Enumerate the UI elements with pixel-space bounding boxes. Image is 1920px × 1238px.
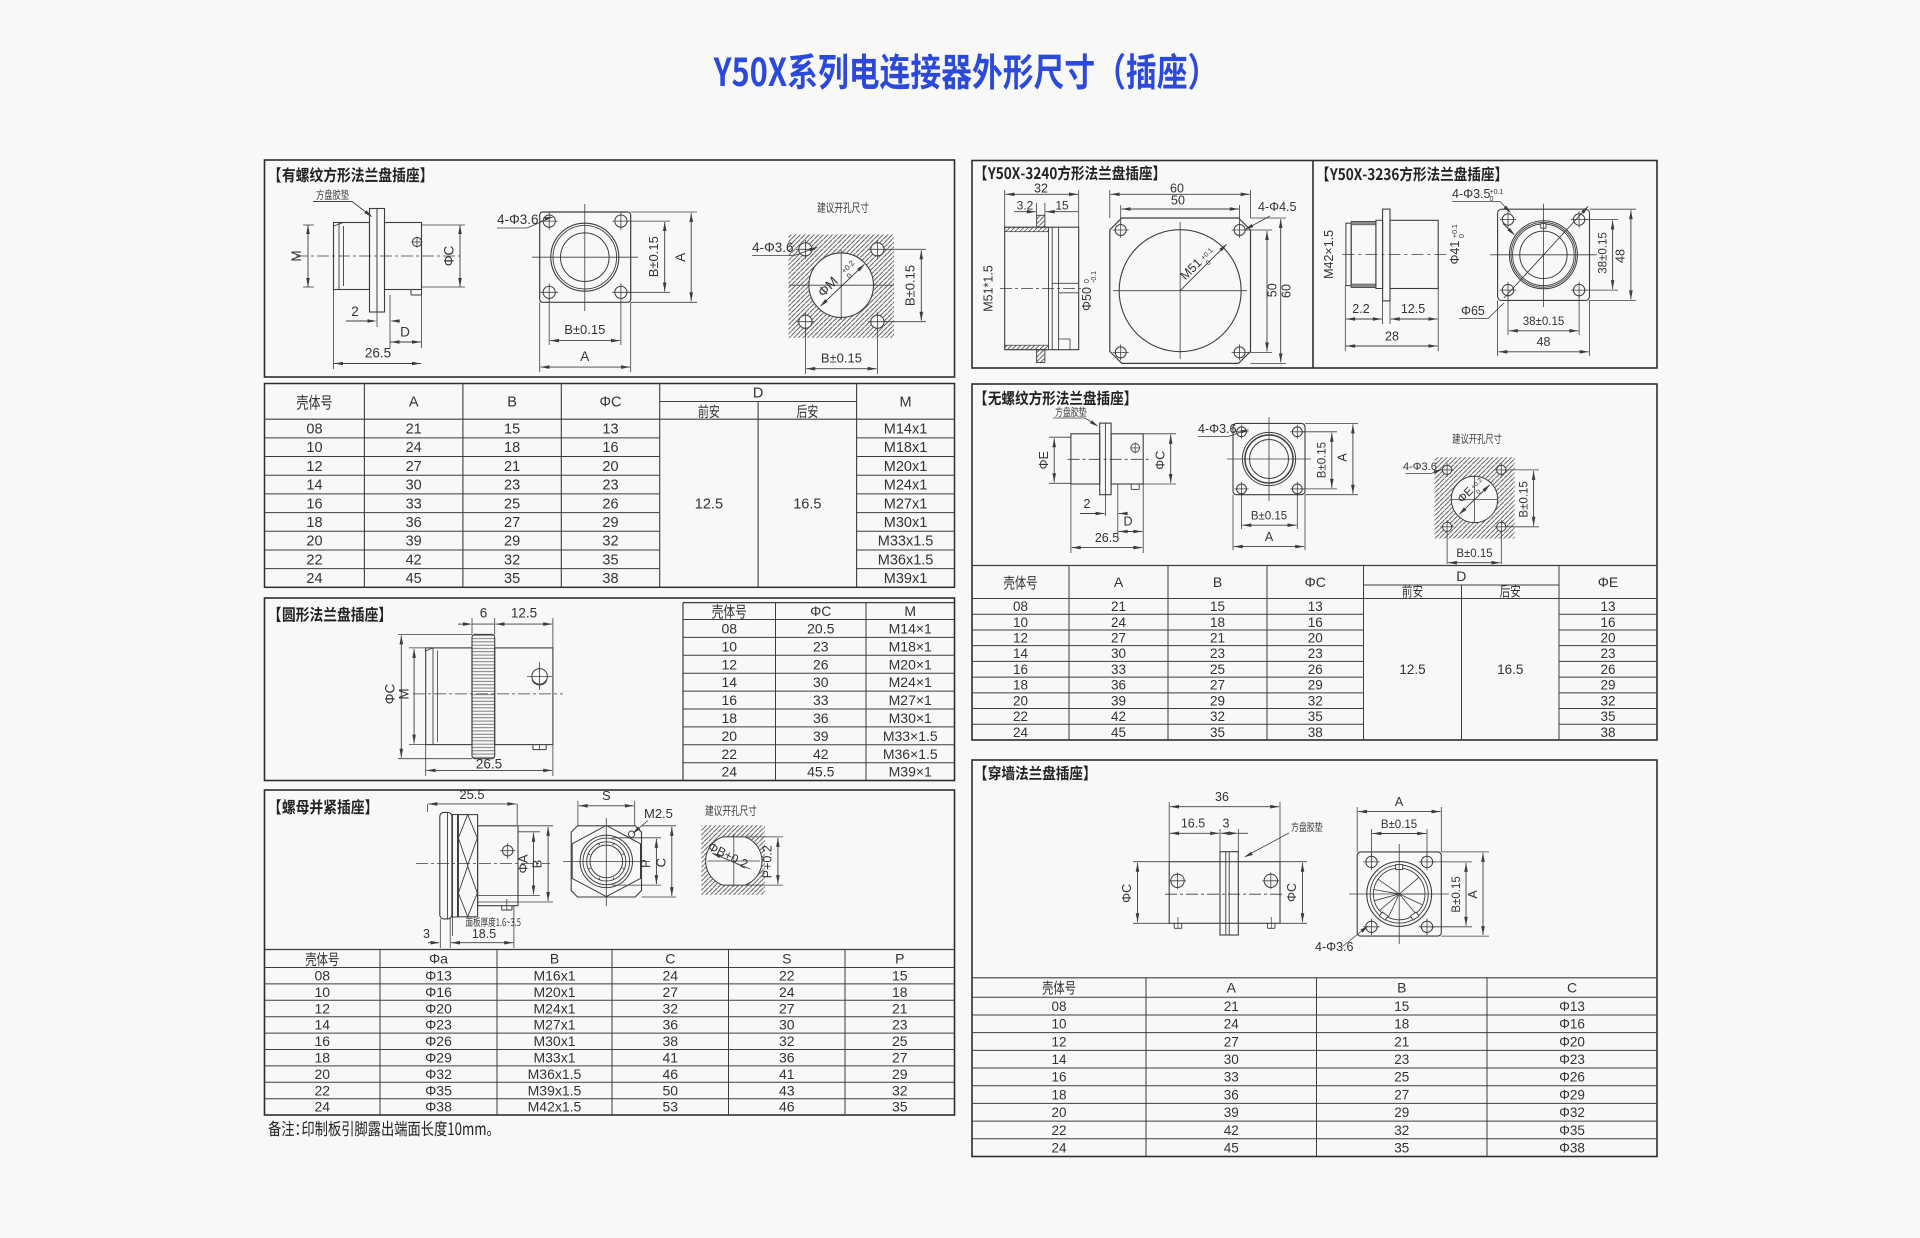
- svg-text:ΦC: ΦC: [442, 245, 457, 266]
- svg-text:27: 27: [406, 459, 422, 475]
- svg-text:10: 10: [721, 638, 737, 654]
- svg-text:20: 20: [306, 534, 322, 550]
- svg-text:18: 18: [892, 984, 908, 1000]
- svg-text:21: 21: [504, 459, 520, 475]
- svg-text:A: A: [1265, 530, 1274, 544]
- svg-text:B: B: [507, 395, 517, 411]
- svg-text:30: 30: [779, 1017, 795, 1033]
- svg-text:29: 29: [892, 1066, 908, 1082]
- svg-text:16.5: 16.5: [793, 496, 821, 512]
- svg-text:12: 12: [306, 459, 322, 475]
- svg-text:14: 14: [306, 478, 322, 494]
- svg-text:16.5: 16.5: [1181, 817, 1205, 831]
- svg-text:23: 23: [504, 478, 520, 494]
- svg-text:20: 20: [721, 728, 737, 744]
- svg-text:2: 2: [351, 304, 359, 319]
- svg-text:53: 53: [662, 1099, 678, 1115]
- svg-text:23: 23: [1600, 646, 1615, 661]
- svg-text:25: 25: [1210, 662, 1225, 677]
- svg-text:42: 42: [406, 552, 422, 568]
- svg-text:26: 26: [1600, 662, 1615, 677]
- svg-text:27: 27: [779, 1000, 795, 1016]
- svg-text:Φa: Φa: [429, 951, 448, 967]
- svg-text:38: 38: [662, 1033, 678, 1049]
- svg-text:23: 23: [1308, 646, 1323, 661]
- svg-text:P: P: [638, 859, 653, 868]
- svg-text:Φ38: Φ38: [425, 1099, 452, 1115]
- svg-text:ΦC: ΦC: [1120, 884, 1134, 903]
- svg-text:M27×1: M27×1: [889, 692, 932, 708]
- svg-text:M33x1.5: M33x1.5: [878, 534, 934, 550]
- svg-text:18: 18: [504, 440, 520, 456]
- svg-text:21: 21: [892, 1000, 908, 1016]
- svg-text:ΦC: ΦC: [599, 395, 621, 411]
- svg-text:+0.1: +0.1: [1452, 224, 1459, 238]
- svg-text:08: 08: [306, 422, 322, 438]
- svg-text:39: 39: [813, 728, 829, 744]
- svg-text:20: 20: [314, 1066, 330, 1082]
- svg-text:32: 32: [602, 534, 618, 550]
- svg-text:15: 15: [1055, 199, 1069, 213]
- svg-text:3: 3: [423, 927, 430, 941]
- svg-text:48: 48: [1614, 249, 1628, 263]
- svg-text:M36x1.5: M36x1.5: [878, 552, 934, 568]
- svg-text:20.5: 20.5: [807, 620, 834, 636]
- svg-text:35: 35: [892, 1099, 908, 1115]
- svg-text:M: M: [900, 395, 912, 411]
- svg-text:24: 24: [1013, 725, 1029, 740]
- svg-text:38: 38: [1308, 725, 1323, 740]
- svg-text:C: C: [665, 951, 675, 967]
- svg-text:30: 30: [1224, 1052, 1239, 1067]
- svg-text:50: 50: [662, 1082, 678, 1098]
- svg-text:12: 12: [1013, 631, 1028, 646]
- svg-text:23: 23: [1210, 646, 1225, 661]
- svg-text:A: A: [1395, 795, 1404, 809]
- svg-text:M24x1: M24x1: [884, 478, 928, 494]
- svg-text:M39×1: M39×1: [889, 764, 932, 780]
- svg-text:21: 21: [1111, 599, 1126, 614]
- svg-text:24: 24: [314, 1099, 330, 1115]
- svg-text:22: 22: [721, 746, 737, 762]
- svg-text:4-Φ3.6: 4-Φ3.6: [497, 212, 539, 227]
- svg-text:38±0.15: 38±0.15: [1598, 232, 1610, 274]
- svg-text:A: A: [409, 395, 419, 411]
- svg-text:4-Φ3.6: 4-Φ3.6: [1403, 461, 1437, 473]
- svg-text:16: 16: [602, 440, 618, 456]
- svg-text:B±0.15: B±0.15: [1451, 876, 1463, 912]
- svg-text:M42x1.5: M42x1.5: [528, 1099, 582, 1115]
- svg-text:Φ23: Φ23: [1559, 1052, 1585, 1067]
- svg-text:24: 24: [306, 571, 322, 587]
- svg-text:Φ13: Φ13: [425, 968, 452, 984]
- svg-text:Φ26: Φ26: [1559, 1070, 1585, 1085]
- svg-text:Φ16: Φ16: [425, 984, 452, 1000]
- svg-text:4-Φ3.6: 4-Φ3.6: [752, 240, 794, 255]
- svg-text:D: D: [400, 325, 410, 340]
- svg-text:08: 08: [1051, 999, 1066, 1014]
- svg-text:33: 33: [406, 496, 422, 512]
- svg-text:3: 3: [1223, 817, 1230, 831]
- svg-text:36: 36: [1215, 790, 1229, 804]
- svg-text:30: 30: [813, 674, 829, 690]
- svg-text:20: 20: [1308, 631, 1323, 646]
- svg-text:27: 27: [892, 1050, 908, 1066]
- svg-text:+0.1: +0.1: [1490, 189, 1504, 196]
- svg-text:-0.1: -0.1: [1091, 271, 1098, 283]
- svg-text:M39x1.5: M39x1.5: [528, 1082, 582, 1098]
- svg-text:18: 18: [1394, 1017, 1409, 1032]
- svg-text:14: 14: [721, 674, 737, 690]
- svg-text:0: 0: [1084, 279, 1091, 283]
- svg-text:39: 39: [1111, 693, 1126, 708]
- svg-text:D: D: [1456, 568, 1466, 584]
- svg-text:18: 18: [1051, 1087, 1066, 1102]
- svg-text:12.5: 12.5: [695, 496, 723, 512]
- svg-text:M42×1.5: M42×1.5: [1322, 230, 1336, 279]
- svg-text:M24x1: M24x1: [533, 1000, 575, 1016]
- svg-text:B±0.15: B±0.15: [1519, 481, 1531, 517]
- svg-text:B: B: [550, 951, 559, 967]
- svg-text:38±0.15: 38±0.15: [1523, 316, 1565, 328]
- svg-text:Φ65: Φ65: [1461, 304, 1485, 318]
- svg-text:18: 18: [314, 1050, 330, 1066]
- svg-text:12: 12: [721, 656, 737, 672]
- svg-text:ΦA: ΦA: [516, 854, 531, 873]
- svg-text:24: 24: [779, 984, 795, 1000]
- svg-text:M16x1: M16x1: [533, 968, 575, 984]
- svg-text:35: 35: [1600, 709, 1615, 724]
- svg-text:45: 45: [406, 571, 422, 587]
- svg-text:35: 35: [1210, 725, 1225, 740]
- svg-text:0: 0: [1459, 234, 1466, 238]
- svg-text:3.2: 3.2: [1017, 199, 1034, 213]
- svg-text:M30x1: M30x1: [884, 515, 928, 531]
- svg-text:24: 24: [406, 440, 422, 456]
- svg-text:16.5: 16.5: [1497, 662, 1523, 677]
- svg-text:50: 50: [1171, 194, 1185, 208]
- svg-text:27: 27: [1394, 1087, 1409, 1102]
- svg-text:32: 32: [504, 552, 520, 568]
- svg-text:M: M: [904, 603, 916, 619]
- svg-text:16: 16: [1013, 662, 1028, 677]
- svg-text:26: 26: [813, 656, 829, 672]
- svg-text:23: 23: [813, 638, 829, 654]
- svg-text:Φ41: Φ41: [1448, 241, 1462, 265]
- svg-text:32: 32: [662, 1000, 678, 1016]
- svg-text:12: 12: [314, 1000, 330, 1016]
- svg-text:P+0.2: P+0.2: [761, 845, 775, 878]
- svg-text:18: 18: [1210, 615, 1225, 630]
- svg-text:22: 22: [314, 1082, 330, 1098]
- svg-text:14: 14: [1051, 1052, 1067, 1067]
- svg-text:B: B: [530, 860, 545, 869]
- svg-text:26: 26: [602, 496, 618, 512]
- svg-text:ΦC: ΦC: [810, 603, 831, 619]
- svg-text:16: 16: [1600, 615, 1615, 630]
- svg-text:12.5: 12.5: [511, 606, 537, 621]
- svg-text:Φ26: Φ26: [425, 1033, 452, 1049]
- svg-text:M39x1: M39x1: [884, 571, 928, 587]
- svg-text:ΦC: ΦC: [383, 683, 398, 704]
- svg-text:S: S: [782, 951, 791, 967]
- svg-text:ΦE: ΦE: [1598, 574, 1619, 590]
- svg-text:M51*1.5: M51*1.5: [982, 265, 996, 312]
- svg-text:32: 32: [1308, 693, 1323, 708]
- svg-text:M36x1.5: M36x1.5: [528, 1066, 582, 1082]
- svg-text:10: 10: [1051, 1017, 1066, 1032]
- svg-text:C: C: [1567, 979, 1577, 995]
- svg-text:25: 25: [1394, 1070, 1409, 1085]
- svg-text:35: 35: [1308, 709, 1323, 724]
- svg-text:M24×1: M24×1: [889, 674, 932, 690]
- svg-text:B±0.15: B±0.15: [1317, 442, 1329, 478]
- svg-text:21: 21: [1224, 999, 1239, 1014]
- svg-text:B±0.15: B±0.15: [903, 265, 918, 306]
- svg-text:M33×1.5: M33×1.5: [883, 728, 938, 744]
- svg-text:29: 29: [1210, 693, 1225, 708]
- svg-text:33: 33: [813, 692, 829, 708]
- svg-text:M27x1: M27x1: [884, 496, 928, 512]
- svg-text:23: 23: [602, 478, 618, 494]
- svg-text:M18×1: M18×1: [889, 638, 932, 654]
- svg-text:36: 36: [779, 1050, 795, 1066]
- svg-text:46: 46: [779, 1099, 795, 1115]
- svg-text:M36×1.5: M36×1.5: [883, 746, 938, 762]
- svg-text:M: M: [289, 250, 304, 261]
- svg-text:08: 08: [721, 620, 737, 636]
- svg-text:Φ38: Φ38: [1559, 1140, 1585, 1155]
- svg-text:Φ35: Φ35: [425, 1082, 452, 1098]
- svg-text:M33x1: M33x1: [533, 1050, 575, 1066]
- svg-text:A: A: [1466, 890, 1480, 899]
- svg-text:18.5: 18.5: [472, 927, 496, 941]
- svg-text:ΦC: ΦC: [1154, 451, 1168, 470]
- svg-text:13: 13: [1600, 599, 1615, 614]
- svg-text:M30x1: M30x1: [533, 1033, 575, 1049]
- svg-text:32: 32: [779, 1033, 795, 1049]
- svg-text:B±0.15: B±0.15: [646, 236, 661, 277]
- svg-text:26: 26: [1308, 662, 1323, 677]
- svg-text:ΦE: ΦE: [1037, 451, 1051, 469]
- svg-text:16: 16: [721, 692, 737, 708]
- svg-text:14: 14: [314, 1017, 330, 1033]
- svg-text:Φ32: Φ32: [425, 1066, 452, 1082]
- svg-text:M: M: [397, 688, 412, 699]
- svg-text:ΦC: ΦC: [1305, 574, 1326, 590]
- svg-text:16: 16: [314, 1033, 330, 1049]
- svg-text:21: 21: [406, 422, 422, 438]
- svg-text:A: A: [1336, 453, 1350, 462]
- svg-text:32: 32: [1600, 693, 1615, 708]
- svg-text:48: 48: [1537, 335, 1551, 349]
- svg-text:2: 2: [1084, 497, 1091, 511]
- svg-text:D: D: [1123, 515, 1132, 529]
- svg-text:30: 30: [406, 478, 422, 494]
- svg-text:24: 24: [1224, 1017, 1240, 1032]
- svg-text:M30×1: M30×1: [889, 710, 932, 726]
- svg-text:35: 35: [504, 571, 520, 587]
- svg-text:13: 13: [1308, 599, 1323, 614]
- svg-text:15: 15: [1394, 999, 1409, 1014]
- svg-text:B: B: [1213, 574, 1222, 590]
- svg-text:30: 30: [1111, 646, 1126, 661]
- svg-text:20: 20: [1600, 631, 1615, 646]
- svg-text:12.5: 12.5: [1399, 662, 1425, 677]
- svg-text:18: 18: [1013, 678, 1028, 693]
- svg-text:33: 33: [1224, 1070, 1239, 1085]
- svg-text:B: B: [1397, 979, 1406, 995]
- svg-text:Φ20: Φ20: [1559, 1034, 1585, 1049]
- svg-text:Φ32: Φ32: [1559, 1105, 1585, 1120]
- svg-text:29: 29: [1394, 1105, 1409, 1120]
- svg-text:45: 45: [1224, 1140, 1239, 1155]
- svg-text:22: 22: [1013, 709, 1028, 724]
- svg-text:39: 39: [406, 534, 422, 550]
- svg-text:39: 39: [1224, 1105, 1239, 1120]
- svg-text:Φ23: Φ23: [425, 1017, 452, 1033]
- svg-text:M27x1: M27x1: [533, 1017, 575, 1033]
- svg-text:B±0.15: B±0.15: [1381, 819, 1417, 831]
- svg-text:20: 20: [602, 459, 618, 475]
- svg-text:10: 10: [306, 440, 322, 456]
- svg-text:16: 16: [306, 496, 322, 512]
- svg-text:D: D: [753, 386, 763, 402]
- svg-text:16: 16: [1051, 1070, 1066, 1085]
- svg-text:4-Φ4.5: 4-Φ4.5: [1258, 200, 1297, 214]
- svg-text:36: 36: [662, 1017, 678, 1033]
- svg-text:35: 35: [602, 552, 618, 568]
- svg-text:43: 43: [779, 1082, 795, 1098]
- svg-text:Φ29: Φ29: [425, 1050, 452, 1066]
- svg-text:A: A: [1227, 979, 1237, 995]
- svg-text:23: 23: [892, 1017, 908, 1033]
- svg-text:29: 29: [1600, 678, 1615, 693]
- svg-text:27: 27: [1224, 1034, 1239, 1049]
- svg-text:36: 36: [1111, 678, 1126, 693]
- svg-text:26.5: 26.5: [476, 757, 502, 772]
- svg-text:25: 25: [892, 1033, 908, 1049]
- svg-text:26.5: 26.5: [365, 346, 391, 361]
- svg-text:35: 35: [1394, 1140, 1409, 1155]
- svg-text:M14×1: M14×1: [889, 620, 932, 636]
- svg-text:41: 41: [779, 1066, 795, 1082]
- svg-text:24: 24: [721, 764, 737, 780]
- svg-text:27: 27: [1210, 678, 1225, 693]
- svg-text:32: 32: [1210, 709, 1225, 724]
- svg-text:38: 38: [1600, 725, 1615, 740]
- svg-text:C: C: [654, 858, 669, 867]
- svg-text:50: 50: [1266, 283, 1280, 297]
- svg-text:21: 21: [1210, 631, 1225, 646]
- svg-text:10: 10: [314, 984, 330, 1000]
- svg-text:ΦC: ΦC: [1285, 883, 1299, 902]
- svg-text:Φ35: Φ35: [1559, 1123, 1585, 1138]
- svg-text:08: 08: [1013, 599, 1028, 614]
- svg-text:M20×1: M20×1: [889, 656, 932, 672]
- svg-text:29: 29: [1308, 678, 1323, 693]
- svg-text:B±0.15: B±0.15: [1251, 511, 1287, 523]
- svg-text:36: 36: [1224, 1087, 1239, 1102]
- svg-text:6: 6: [480, 606, 488, 621]
- svg-text:36: 36: [813, 710, 829, 726]
- svg-text:A: A: [580, 349, 589, 364]
- svg-text:Φ16: Φ16: [1559, 1017, 1585, 1032]
- svg-text:M20x1: M20x1: [884, 459, 928, 475]
- svg-text:46: 46: [662, 1066, 678, 1082]
- svg-text:22: 22: [779, 968, 795, 984]
- svg-text:Φ20: Φ20: [425, 1000, 452, 1016]
- svg-text:29: 29: [504, 534, 520, 550]
- svg-text:25.5: 25.5: [459, 787, 484, 802]
- svg-text:22: 22: [1051, 1123, 1066, 1138]
- svg-text:M20x1: M20x1: [533, 984, 575, 1000]
- svg-text:42: 42: [813, 746, 829, 762]
- svg-text:2.2: 2.2: [1352, 302, 1369, 316]
- svg-text:26.5: 26.5: [1095, 531, 1119, 545]
- svg-text:20: 20: [1051, 1105, 1066, 1120]
- svg-text:M2.5: M2.5: [644, 806, 673, 821]
- svg-text:60: 60: [1280, 284, 1294, 298]
- svg-text:27: 27: [1111, 631, 1126, 646]
- svg-text:M18x1: M18x1: [884, 440, 928, 456]
- svg-text:29: 29: [602, 515, 618, 531]
- svg-text:21: 21: [1394, 1034, 1409, 1049]
- svg-text:41: 41: [662, 1050, 678, 1066]
- svg-text:15: 15: [504, 422, 520, 438]
- svg-text:A: A: [673, 253, 688, 262]
- svg-text:42: 42: [1111, 709, 1126, 724]
- svg-text:12.5: 12.5: [1401, 302, 1425, 316]
- svg-text:24: 24: [1111, 615, 1127, 630]
- svg-text:B±0.15: B±0.15: [564, 322, 605, 337]
- svg-text:36: 36: [406, 515, 422, 531]
- svg-text:15: 15: [892, 968, 908, 984]
- svg-text:24: 24: [1051, 1140, 1067, 1155]
- svg-text:32: 32: [1394, 1123, 1409, 1138]
- svg-text:45.5: 45.5: [807, 764, 834, 780]
- svg-text:45: 45: [1111, 725, 1126, 740]
- svg-text:0: 0: [1490, 196, 1494, 203]
- svg-text:Φ29: Φ29: [1559, 1087, 1585, 1102]
- svg-text:28: 28: [1385, 330, 1399, 344]
- svg-text:Φ13: Φ13: [1559, 999, 1585, 1014]
- svg-text:16: 16: [1308, 615, 1323, 630]
- svg-text:23: 23: [1394, 1052, 1409, 1067]
- svg-text:10: 10: [1013, 615, 1028, 630]
- svg-text:24: 24: [662, 968, 678, 984]
- svg-text:M14x1: M14x1: [884, 422, 928, 438]
- svg-text:27: 27: [504, 515, 520, 531]
- svg-text:B±0.15: B±0.15: [821, 350, 862, 365]
- svg-text:18: 18: [721, 710, 737, 726]
- svg-text:22: 22: [306, 552, 322, 568]
- svg-text:13: 13: [602, 422, 618, 438]
- svg-text:12: 12: [1051, 1034, 1066, 1049]
- svg-text:18: 18: [306, 515, 322, 531]
- svg-text:B±0.15: B±0.15: [1456, 548, 1492, 560]
- svg-text:38: 38: [602, 571, 618, 587]
- svg-text:4-Φ3.5: 4-Φ3.5: [1452, 187, 1491, 201]
- svg-text:32: 32: [1034, 182, 1048, 196]
- svg-text:4-Φ3.6: 4-Φ3.6: [1198, 422, 1237, 436]
- svg-text:P: P: [895, 951, 904, 967]
- svg-text:A: A: [1114, 574, 1124, 590]
- svg-text:27: 27: [662, 984, 678, 1000]
- svg-text:33: 33: [1111, 662, 1126, 677]
- svg-text:S: S: [602, 788, 611, 803]
- svg-text:Φ50: Φ50: [1080, 287, 1094, 311]
